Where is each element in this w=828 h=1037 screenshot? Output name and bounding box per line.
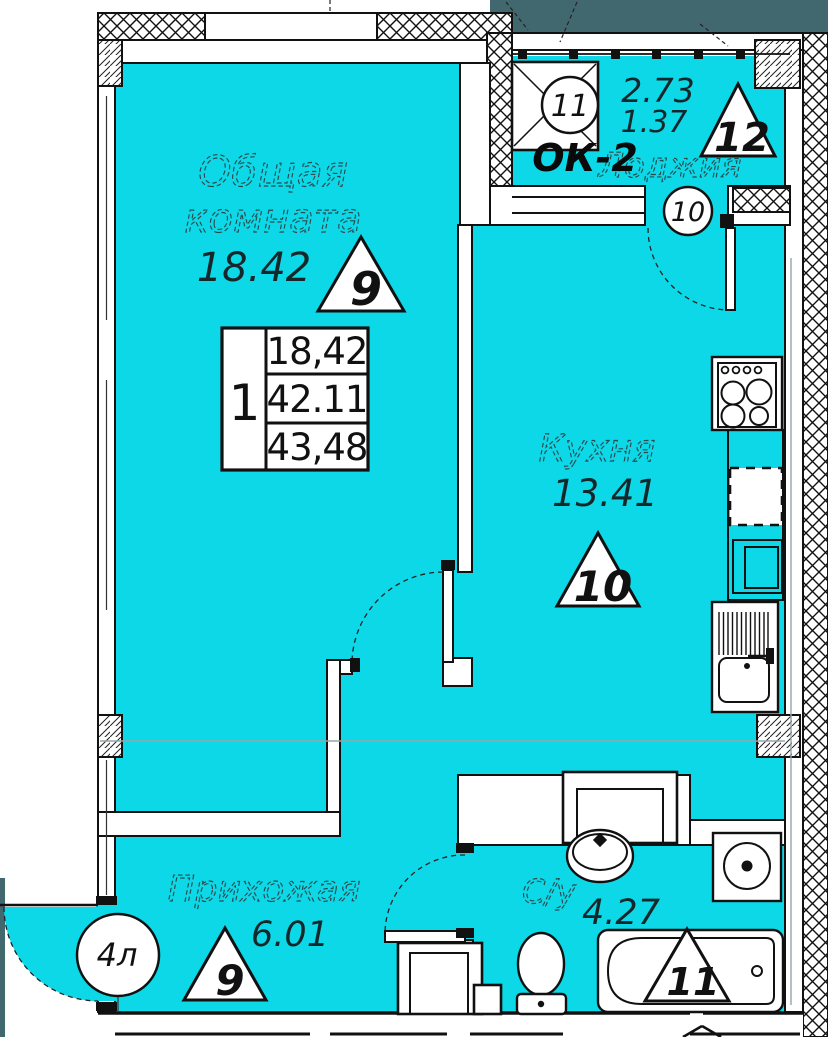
living-room-label-1: Общая	[198, 147, 348, 196]
entrance-jamb-top	[96, 896, 117, 905]
living-room-area: 18.42	[197, 245, 312, 291]
loggia-kitchen-wall-left	[490, 186, 645, 225]
sink-faucet-base	[766, 648, 774, 664]
kitchen-label: Кухня	[539, 427, 656, 470]
bath-door-leaf	[385, 931, 465, 942]
total-area-value: 43,48	[267, 426, 368, 469]
bath-area: 4.27	[582, 893, 660, 933]
living-kitchen-wall-top	[460, 63, 490, 225]
loggia-kitchen-wall-hatch	[733, 188, 790, 212]
bath-door-jamb	[456, 843, 474, 853]
living-room-label-2: комната	[184, 196, 361, 242]
top-wall-hatch-left	[98, 13, 205, 40]
outside-top-right	[490, 0, 828, 35]
bath-label: С/у	[522, 872, 576, 911]
living-door-jamb2	[350, 658, 360, 672]
floor-plan-page: 9 12 10 9 11 11 10 4л Общая комната 18.4…	[0, 0, 828, 1037]
pier-kitchen-bottom	[757, 715, 800, 757]
pier-top-right	[755, 40, 800, 88]
window-mark-label: 11	[551, 89, 589, 124]
balcony-door-leaf	[726, 228, 735, 310]
bath-door-jamb2	[456, 928, 474, 938]
living-hall-wall	[98, 812, 340, 836]
area-table: 1 18,42 42.11 43,48	[222, 328, 368, 470]
toilet-button	[538, 1001, 544, 1007]
flat-number: 1	[229, 374, 260, 432]
hall-area-mark: 9	[215, 956, 244, 1005]
bath-area-mark: 11	[667, 960, 720, 1004]
kitchen-area-mark: 10	[574, 562, 632, 611]
door-mark-label: 10	[671, 197, 705, 228]
top-wall-inner-layer	[115, 40, 490, 63]
living-door-leaf	[443, 570, 453, 662]
right-exterior-wall	[803, 33, 828, 1037]
balcony-door-jamb	[720, 214, 734, 228]
entrance-jamb-bottom	[96, 1002, 117, 1011]
sink-faucet-knob	[744, 663, 750, 669]
entrance-mark-label: 4л	[97, 936, 138, 974]
loggia-area-reduced: 1.37	[621, 105, 688, 140]
living-kitchen-wall	[458, 225, 472, 572]
fridge-space-dashed	[730, 468, 782, 525]
washing-machine-dot	[742, 861, 753, 872]
living-area-value: 18,42	[267, 330, 368, 373]
hall-label: Прихожая	[168, 869, 361, 910]
floor-plan-drawing: 9 12 10 9 11 11 10 4л Общая комната 18.4…	[0, 0, 828, 1037]
window-unit-label: ОК-2	[532, 136, 638, 180]
kitchen-area: 13.41	[552, 472, 658, 515]
flat-area-value: 42.11	[267, 378, 368, 421]
pier-left-middle	[98, 715, 122, 757]
cupboard	[563, 772, 677, 843]
outside-left-sliver	[0, 878, 5, 1037]
living-door-jamb	[441, 560, 455, 570]
duct-box-small	[474, 985, 501, 1014]
living-area-mark: 9	[350, 262, 382, 316]
toilet-bowl	[518, 933, 564, 995]
stub-wall-vertical	[327, 660, 340, 836]
hall-area: 6.01	[251, 915, 329, 955]
pier-top-left	[98, 40, 122, 86]
